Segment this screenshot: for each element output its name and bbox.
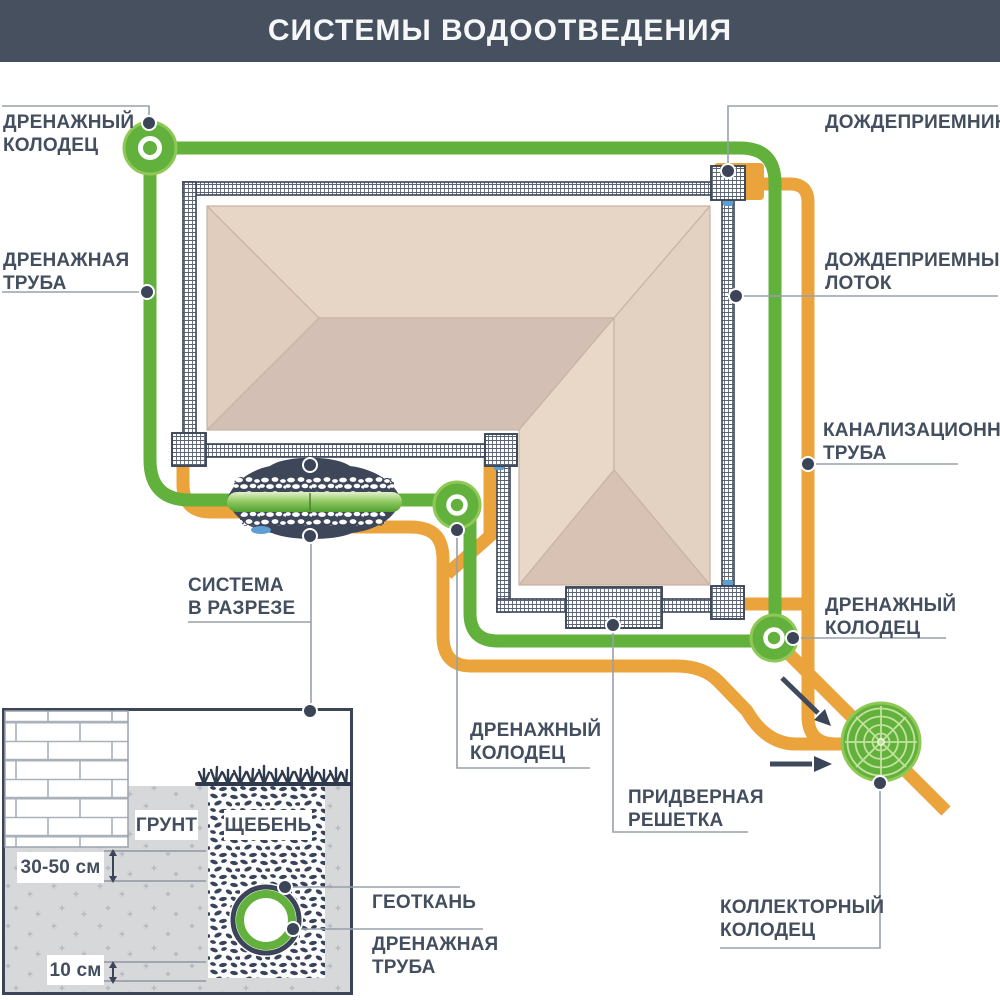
rain-inlet-box [711,586,744,619]
label-drainage-pipe-left: ДРЕНАЖНАЯ ТРУБА [3,249,129,295]
gutter-top [183,182,734,195]
label-drainage-well-middle: ДРЕНАЖНЫЙ КОЛОДЕЦ [470,719,601,765]
drainage-well [434,482,480,528]
label-rain-inlet: ДОЖДЕПРИЕМНИК [825,111,1000,134]
label-soil: ГРУНТ [135,810,198,840]
page-title: СИСТЕМЫ ВОДООТВЕДЕНИЯ [268,14,732,48]
drainage-systems-infographic: СИСТЕМЫ ВОДООТВЕДЕНИЯ [0,0,1000,1000]
water-under-gravel [251,526,271,534]
label-drainage-well-right: ДРЕНАЖНЫЙ КОЛОДЕЦ [825,594,956,640]
buried-pipe [229,883,303,957]
drain-pipe-ring [240,894,292,946]
label-drainage-pipe-section: ДРЕНАЖНАЯ ТРУБА [372,933,498,979]
rain-inlet-box [172,433,206,466]
label-dim-bedding: 10 см [47,955,104,985]
label-rain-tray: ДОЖДЕПРИЕМНЫЙ ЛОТОК [825,249,1000,295]
gravel-band-bottom [240,511,386,526]
gutter-bottom-main [183,444,517,457]
label-system-in-section: СИСТЕМА В РАЗРЕЗЕ [188,574,295,620]
label-door-grate: ПРИДВЕРНАЯ РЕШЕТКА [628,786,764,832]
gutter-left [183,182,196,457]
gravel-band-top [234,477,394,492]
label-sewer-pipe: КАНАЛИЗАЦИОННАЯ ТРУБА [823,419,1000,465]
collector-well [842,703,920,781]
gutter-right [722,182,734,618]
label-geotextile: ГЕОТКАНЬ [372,891,476,914]
label-collector-well: КОЛЛЕКТОРНЫЙ КОЛОДЕЦ [720,896,884,942]
label-drainage-well-top-left: ДРЕНАЖНЫЙ КОЛОДЕЦ [3,111,134,157]
title-bar: СИСТЕМЫ ВОДООТВЕДЕНИЯ [0,0,1000,62]
label-dim-trench-depth: 30-50 см [17,852,104,883]
label-gravel: ЩЕБЕНЬ [224,810,312,840]
rain-inlet-box [485,434,517,466]
brick-wall [5,711,128,847]
drain-pipe-cutaway [227,492,402,512]
diagram-canvas [0,0,1000,1000]
